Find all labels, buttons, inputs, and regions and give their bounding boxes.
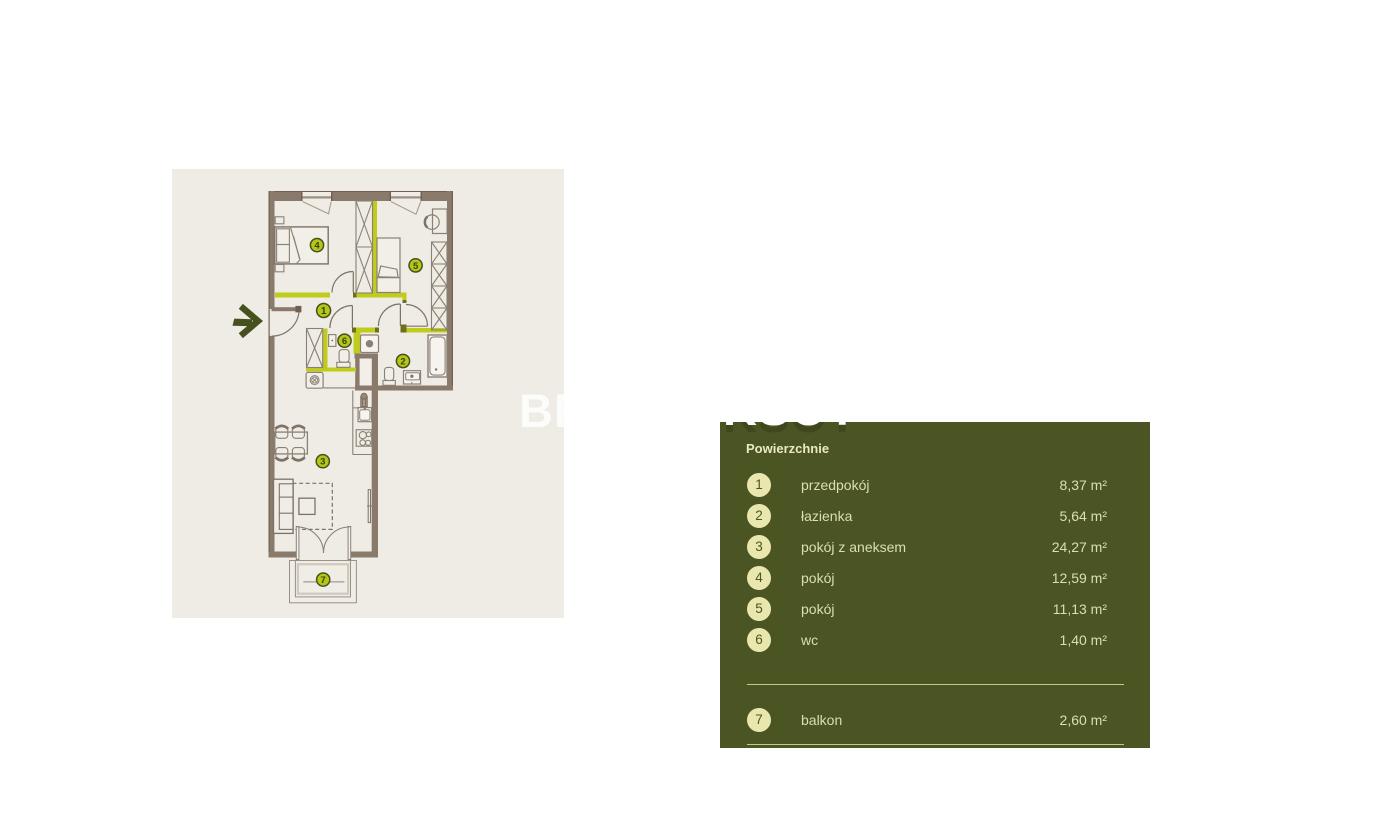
svg-text:5: 5 (413, 261, 419, 272)
svg-text:1: 1 (321, 306, 327, 317)
svg-text:6: 6 (342, 336, 347, 347)
svg-text:3: 3 (320, 457, 325, 468)
svg-text:4: 4 (314, 241, 320, 252)
svg-text:7: 7 (321, 575, 326, 586)
svg-text:2: 2 (400, 357, 405, 368)
